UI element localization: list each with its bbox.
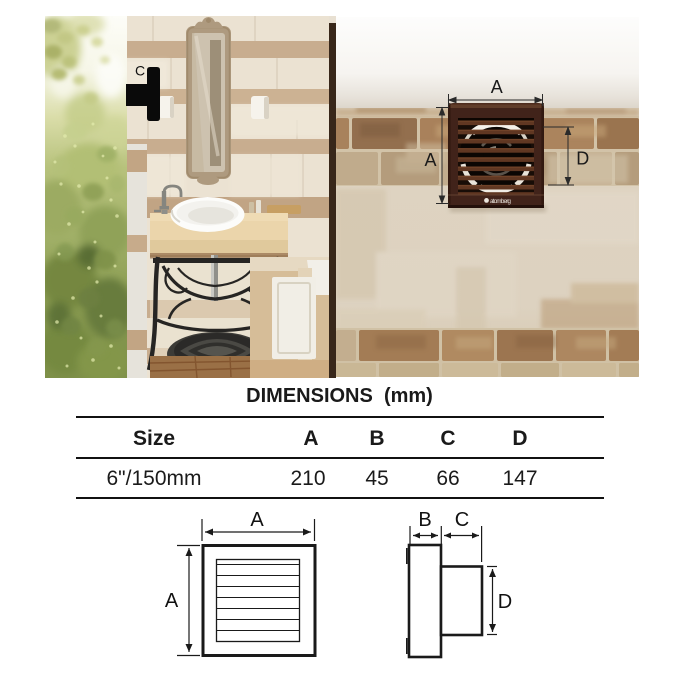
svg-text:B: B — [418, 509, 431, 531]
svg-text:A: A — [250, 509, 264, 531]
svg-text:C: C — [455, 509, 469, 531]
svg-text:D: D — [576, 149, 589, 169]
svg-text:A: A — [491, 77, 503, 97]
svg-text:D: D — [498, 591, 512, 613]
svg-text:C: C — [135, 63, 145, 79]
svg-text:A: A — [165, 590, 179, 612]
svg-text:A: A — [424, 150, 436, 170]
